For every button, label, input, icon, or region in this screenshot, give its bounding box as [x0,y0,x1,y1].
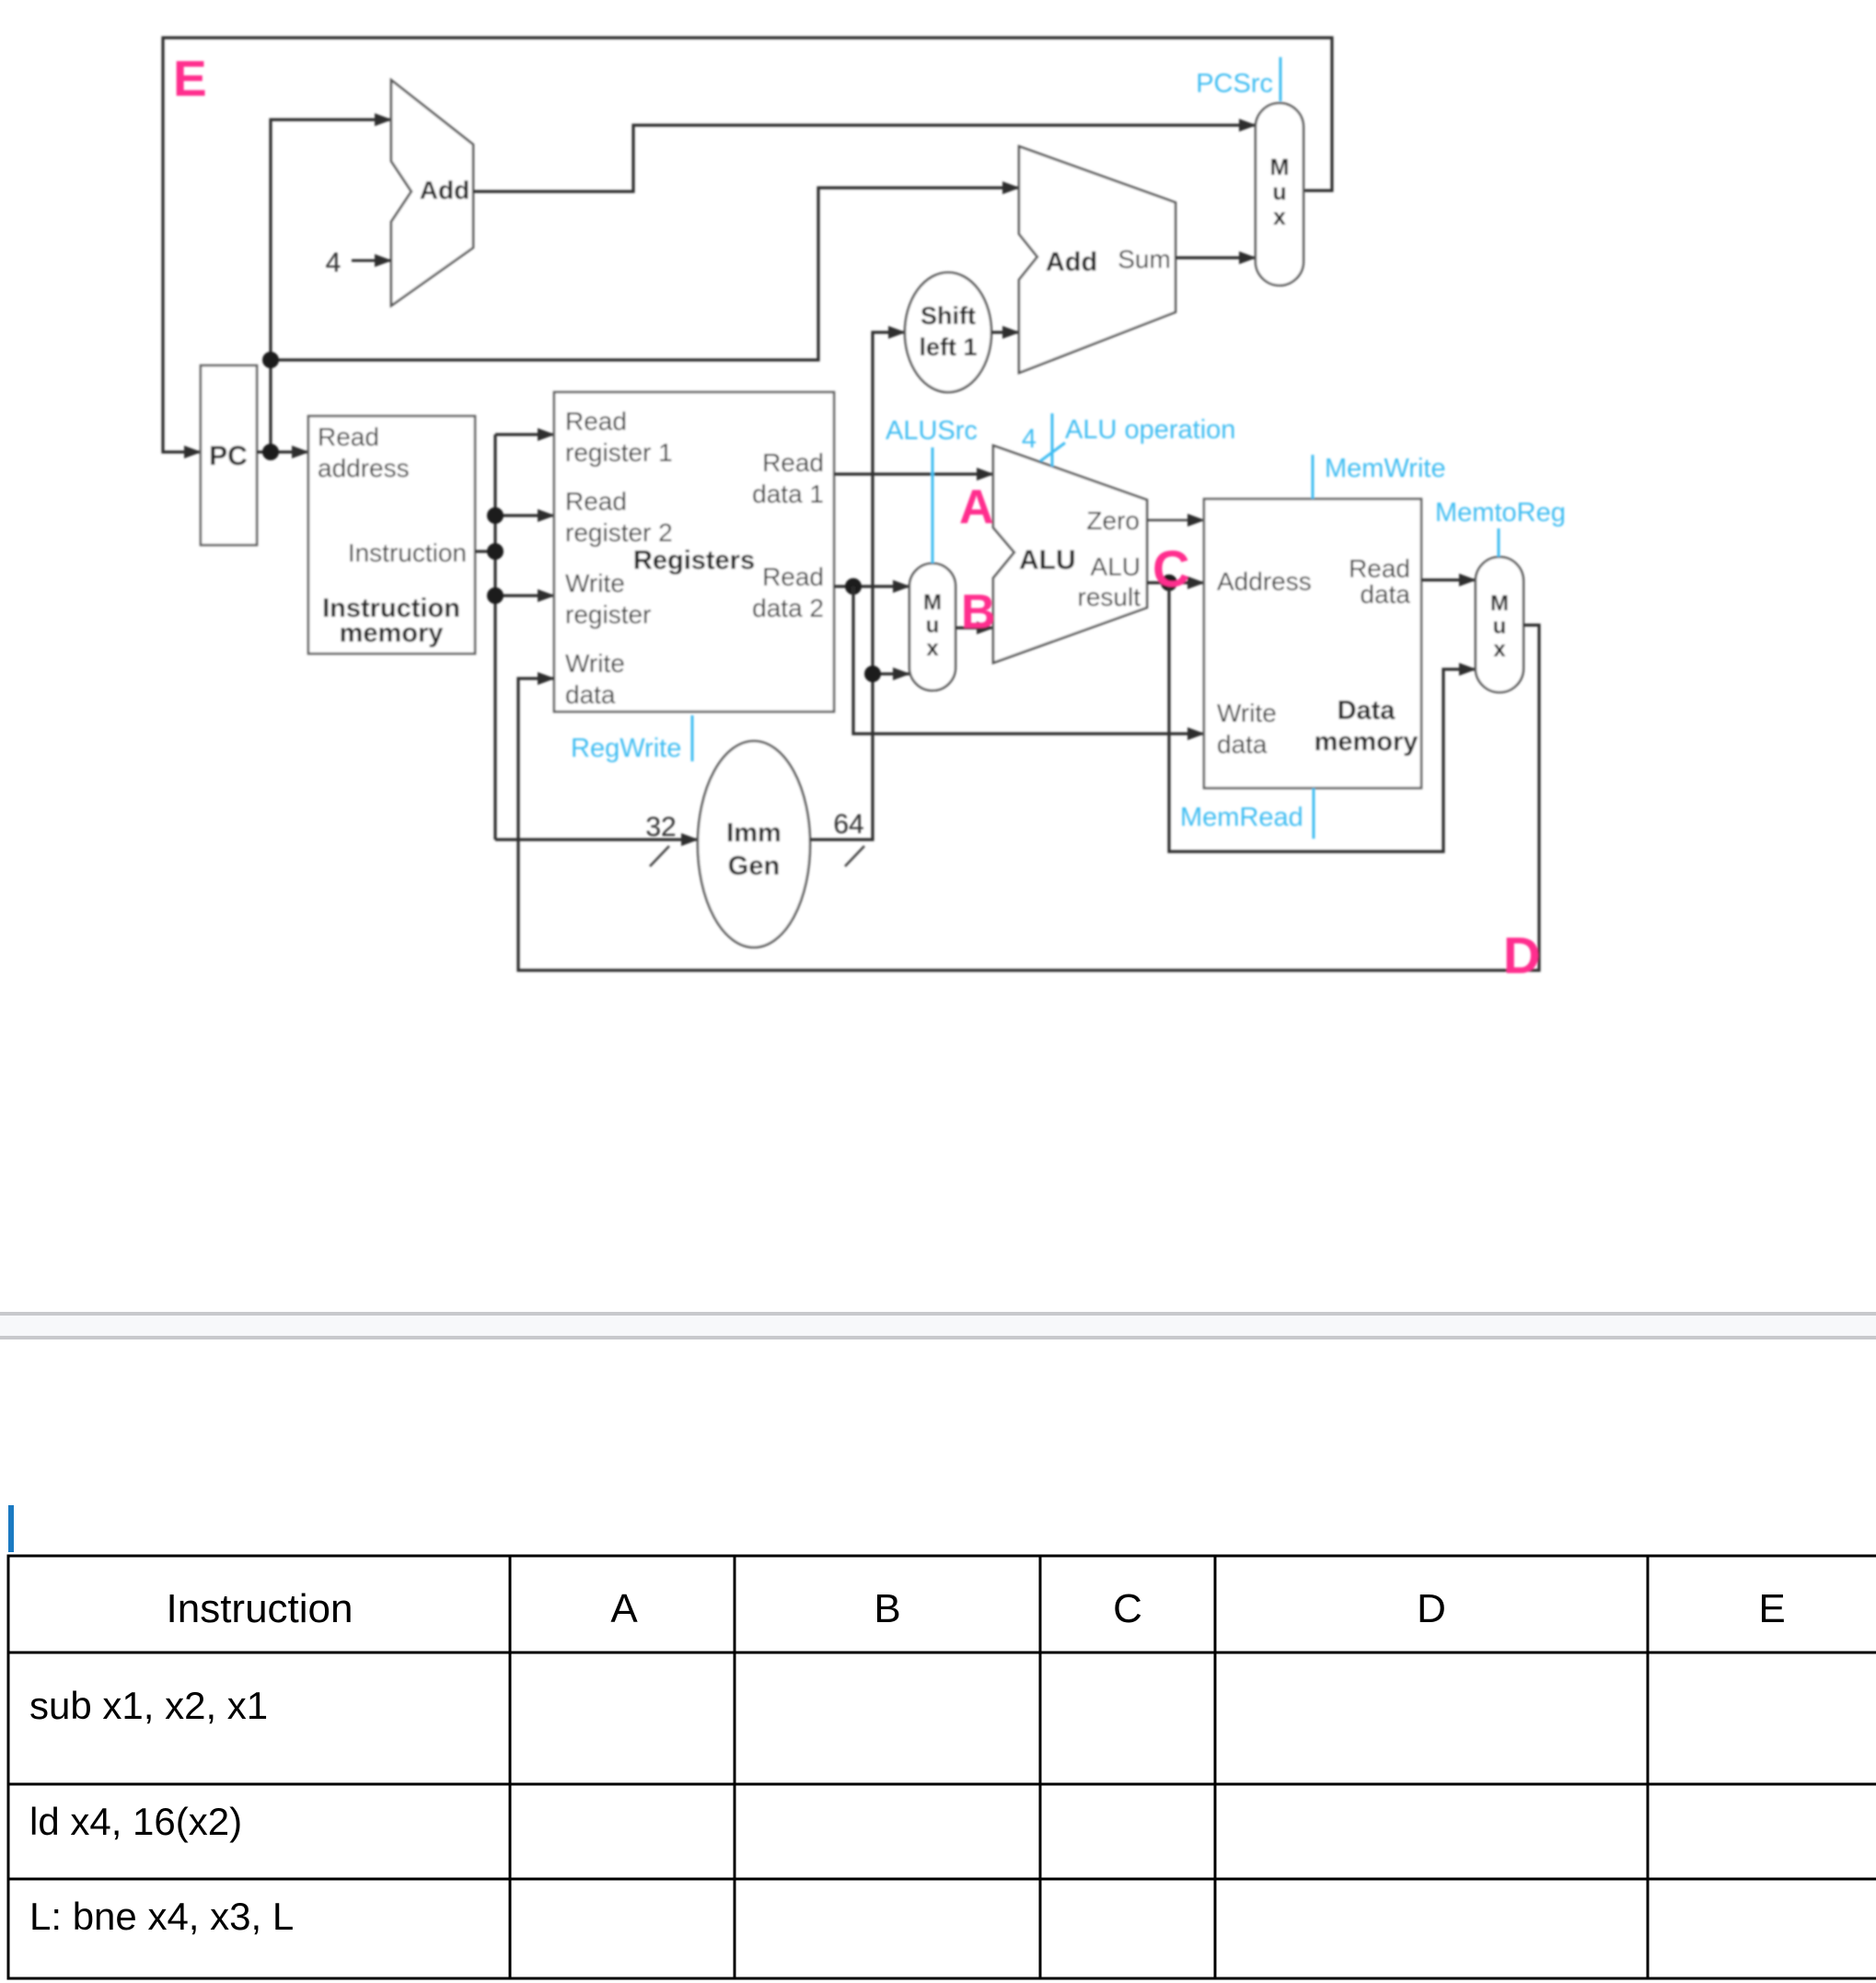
svg-text:E: E [1758,1586,1785,1631]
svg-text:u: u [1493,614,1507,639]
svg-text:register: register [565,600,651,629]
svg-text:D: D [1417,1586,1446,1631]
svg-text:register 2: register 2 [565,518,673,547]
svg-text:memory: memory [1314,727,1419,757]
svg-text:Write: Write [1217,699,1277,727]
svg-text:Gen: Gen [728,852,780,881]
svg-text:RegWrite: RegWrite [571,734,681,763]
svg-text:ALU: ALU [1091,552,1141,581]
svg-text:PCSrc: PCSrc [1196,69,1273,99]
svg-text:E: E [173,50,207,107]
svg-text:M: M [1490,591,1509,616]
svg-text:Instruction: Instruction [348,539,467,567]
svg-text:C: C [1113,1586,1142,1631]
svg-text:B: B [874,1586,900,1631]
svg-text:M: M [1270,155,1290,180]
svg-text:Imm: Imm [726,818,782,848]
svg-text:data 2: data 2 [752,594,824,622]
svg-text:L: bne x4, x3, L: L: bne x4, x3, L [29,1895,294,1938]
svg-text:Read: Read [762,562,824,591]
svg-text:x: x [1493,637,1506,662]
svg-text:u: u [1272,180,1286,205]
svg-text:ld x4, 16(x2): ld x4, 16(x2) [29,1800,242,1843]
svg-text:B: B [961,586,996,639]
svg-text:A: A [610,1586,638,1631]
svg-text:MemRead: MemRead [1180,803,1303,832]
svg-text:data: data [1361,580,1411,609]
svg-text:ALUSrc: ALUSrc [886,416,978,446]
svg-text:Shift: Shift [921,302,976,330]
svg-text:4: 4 [1022,424,1036,454]
svg-text:Read: Read [565,487,627,516]
svg-text:register 1: register 1 [565,438,673,467]
svg-text:Read: Read [565,407,627,435]
svg-text:Sum: Sum [1117,245,1171,273]
svg-text:x: x [926,636,939,661]
svg-text:Read: Read [318,423,379,451]
svg-text:data: data [565,680,616,709]
svg-text:Add: Add [420,176,469,204]
svg-text:Address: Address [1217,567,1312,596]
svg-text:Registers: Registers [633,546,755,575]
svg-text:Write: Write [565,569,625,597]
svg-text:address: address [318,454,410,482]
svg-text:data: data [1217,730,1268,759]
svg-text:D: D [1503,926,1540,984]
svg-text:u: u [926,613,940,638]
svg-text:Read: Read [1349,554,1410,583]
svg-text:sub x1, x2, x1: sub x1, x2, x1 [29,1684,268,1727]
svg-text:data 1: data 1 [752,480,824,508]
svg-text:32: 32 [645,812,676,842]
svg-text:Add: Add [1046,248,1097,277]
svg-text:ALU operation: ALU operation [1065,415,1235,445]
svg-text:A: A [959,481,994,534]
svg-text:64: 64 [833,809,863,840]
svg-text:MemWrite: MemWrite [1325,454,1446,483]
svg-text:C: C [1152,539,1189,597]
svg-text:MemtoReg: MemtoReg [1435,498,1566,528]
svg-text:M: M [923,590,942,615]
svg-text:Write: Write [565,649,625,678]
svg-text:x: x [1273,204,1286,230]
svg-text:memory: memory [340,619,444,648]
svg-text:Instruction: Instruction [167,1586,353,1631]
svg-text:Read: Read [762,448,824,477]
svg-text:left 1: left 1 [919,333,977,361]
svg-text:Data: Data [1338,696,1396,725]
svg-text:result: result [1078,583,1141,611]
svg-text:Zero: Zero [1086,506,1140,535]
svg-text:4: 4 [326,248,342,278]
svg-text:ALU: ALU [1019,545,1076,575]
svg-text:PC: PC [209,441,248,471]
